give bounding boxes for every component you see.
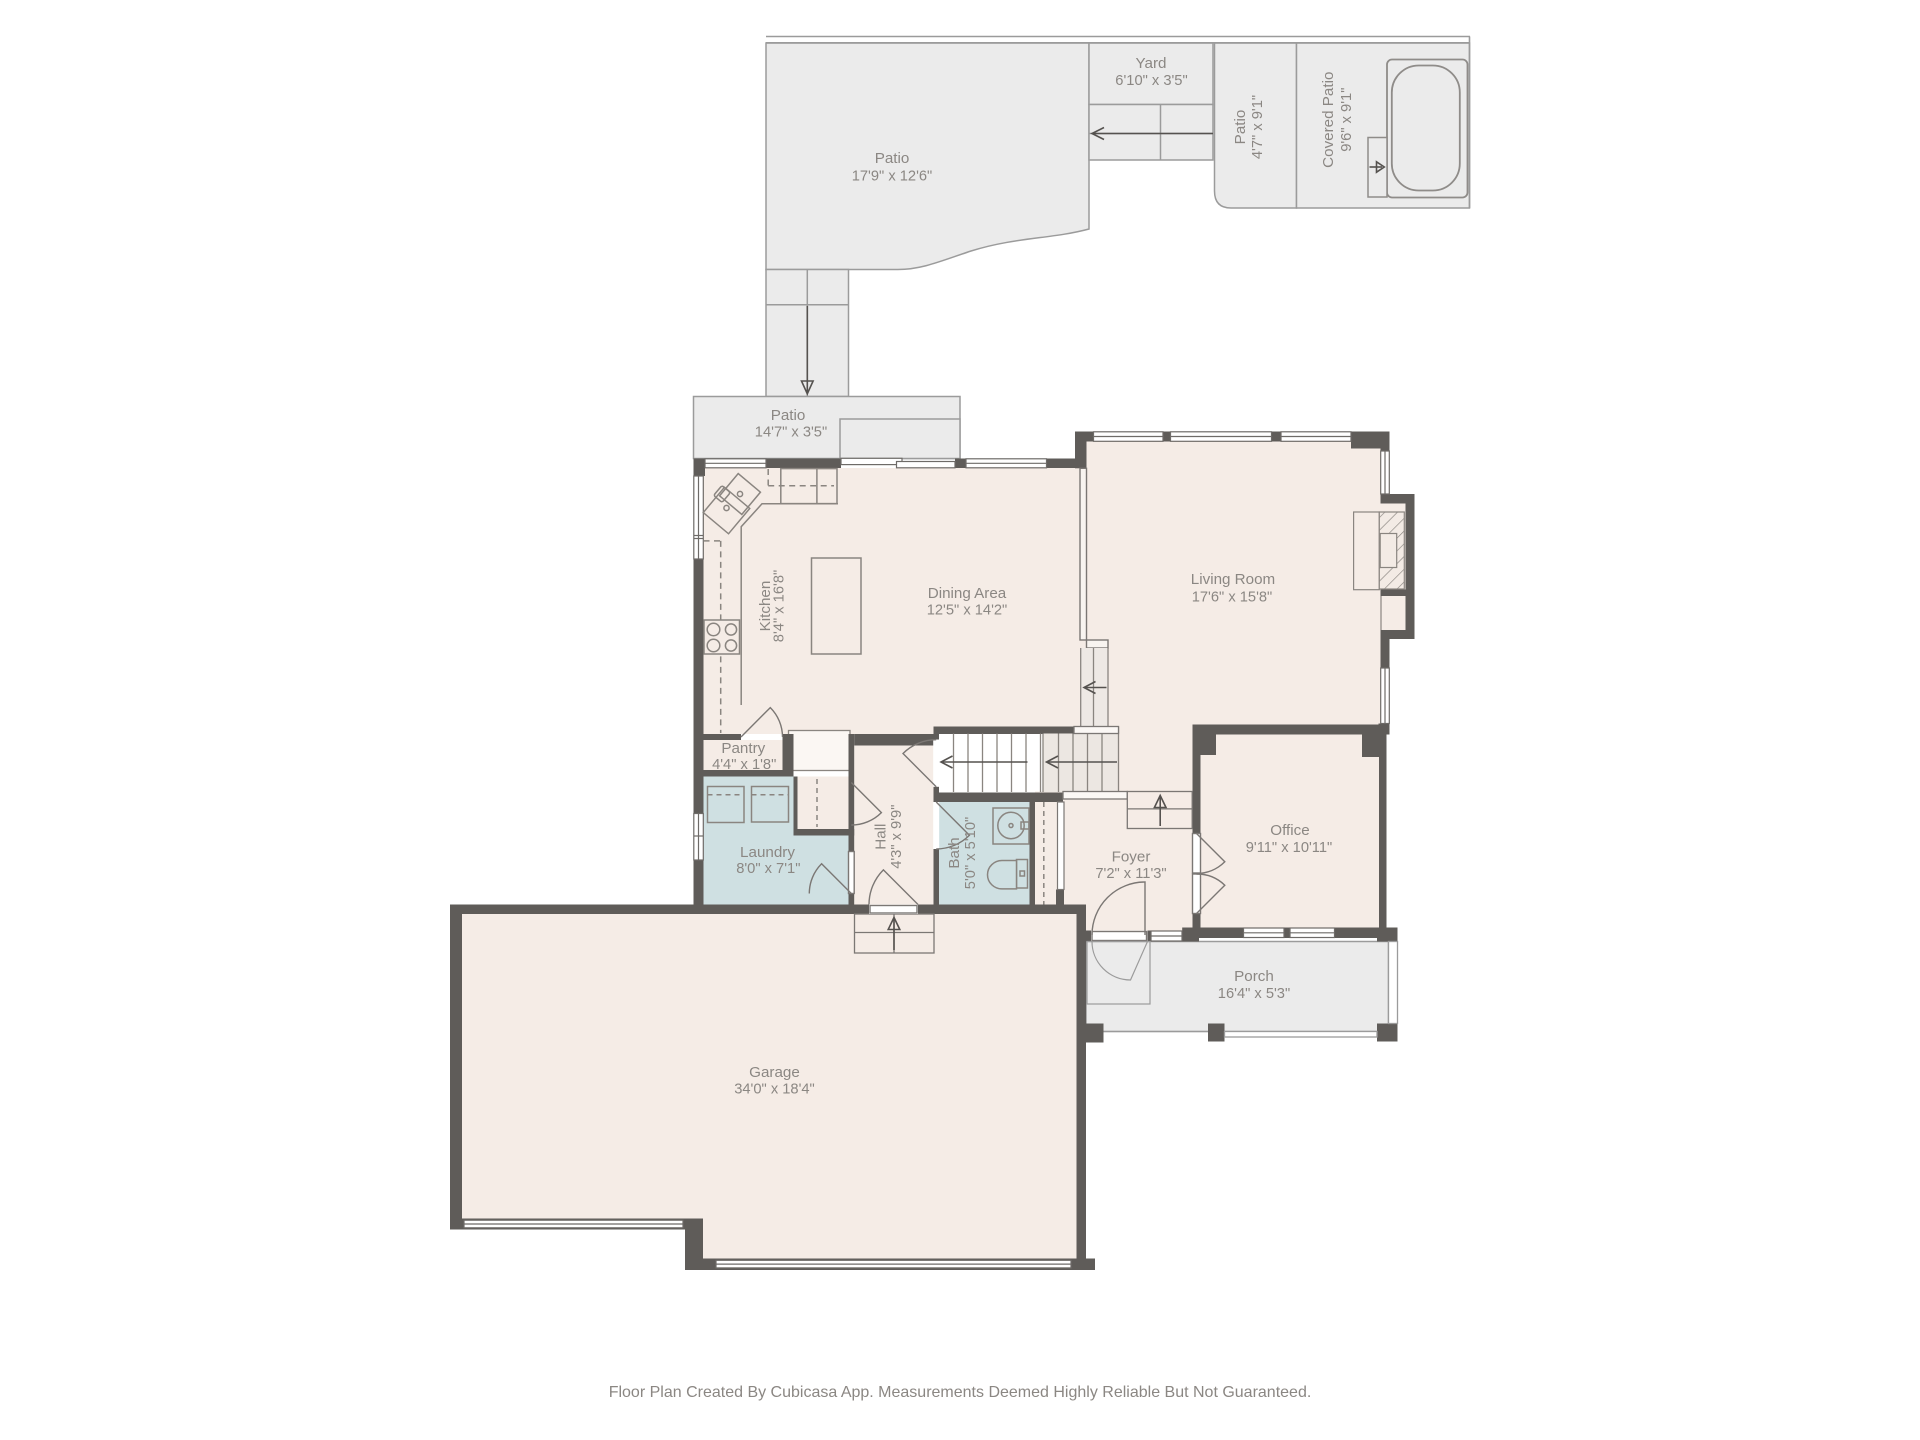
svg-text:Dining Area: Dining Area	[928, 585, 1007, 602]
svg-text:17'6" x 15'8": 17'6" x 15'8"	[1192, 590, 1273, 606]
svg-text:Patio: Patio	[1232, 110, 1249, 145]
svg-text:Living Room: Living Room	[1191, 571, 1275, 588]
svg-text:8'4" x 16'8": 8'4" x 16'8"	[772, 570, 788, 642]
svg-text:9'6" x 9'1": 9'6" x 9'1"	[1339, 88, 1355, 152]
svg-text:Floor Plan Created By Cubicasa: Floor Plan Created By Cubicasa App. Meas…	[609, 1384, 1312, 1401]
svg-text:Laundry: Laundry	[740, 844, 795, 861]
svg-text:4'7" x 9'1": 4'7" x 9'1"	[1250, 95, 1266, 159]
svg-text:7'2" x 11'3": 7'2" x 11'3"	[1095, 866, 1166, 882]
svg-text:Office: Office	[1270, 822, 1309, 839]
svg-text:Foyer: Foyer	[1112, 849, 1151, 866]
svg-text:Porch: Porch	[1234, 968, 1274, 985]
svg-text:4'4" x 1'8": 4'4" x 1'8"	[712, 757, 776, 773]
svg-text:5'0" x 5'10": 5'0" x 5'10"	[963, 817, 979, 889]
svg-text:Garage: Garage	[749, 1064, 800, 1081]
svg-text:12'5" x 14'2": 12'5" x 14'2"	[927, 603, 1008, 619]
svg-text:Bath: Bath	[946, 837, 963, 868]
svg-text:4'3" x 9'9": 4'3" x 9'9"	[889, 805, 905, 869]
svg-text:Hall: Hall	[873, 824, 890, 850]
svg-text:8'0" x 7'1": 8'0" x 7'1"	[736, 861, 800, 877]
svg-text:Patio: Patio	[875, 150, 910, 167]
svg-text:34'0" x 18'4": 34'0" x 18'4"	[734, 1082, 815, 1098]
svg-text:16'4" x 5'3": 16'4" x 5'3"	[1218, 986, 1290, 1002]
svg-text:17'9" x 12'6": 17'9" x 12'6"	[852, 169, 933, 185]
svg-text:Pantry: Pantry	[721, 740, 765, 757]
svg-text:Covered Patio: Covered Patio	[1320, 72, 1337, 168]
svg-text:Yard: Yard	[1136, 55, 1167, 72]
svg-text:9'11" x 10'11": 9'11" x 10'11"	[1246, 840, 1333, 856]
svg-text:14'7" x 3'5": 14'7" x 3'5"	[755, 425, 827, 441]
svg-text:6'10" x 3'5": 6'10" x 3'5"	[1115, 73, 1187, 89]
svg-text:Patio: Patio	[771, 407, 806, 424]
